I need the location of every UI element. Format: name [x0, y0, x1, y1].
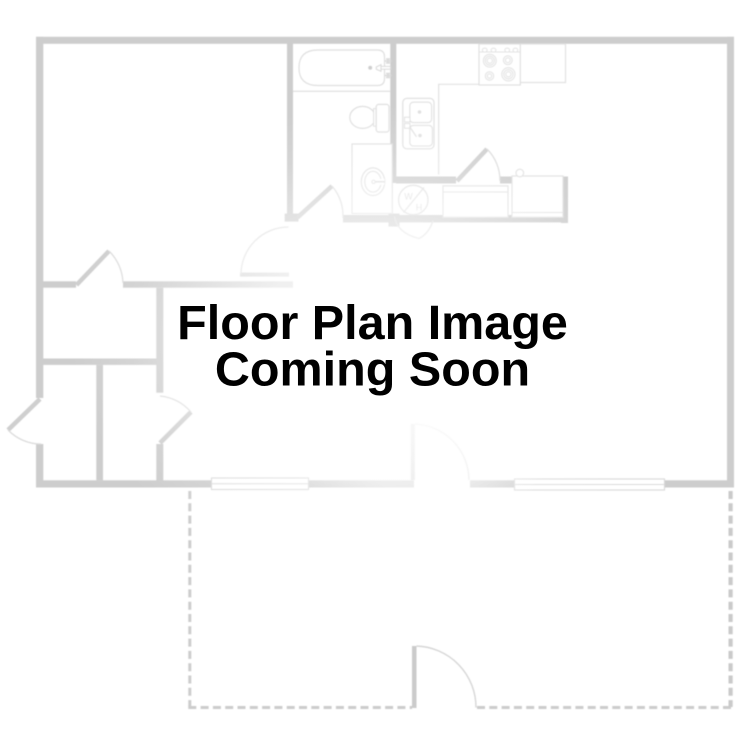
svg-text:Coming Soon: Coming Soon: [215, 343, 530, 397]
